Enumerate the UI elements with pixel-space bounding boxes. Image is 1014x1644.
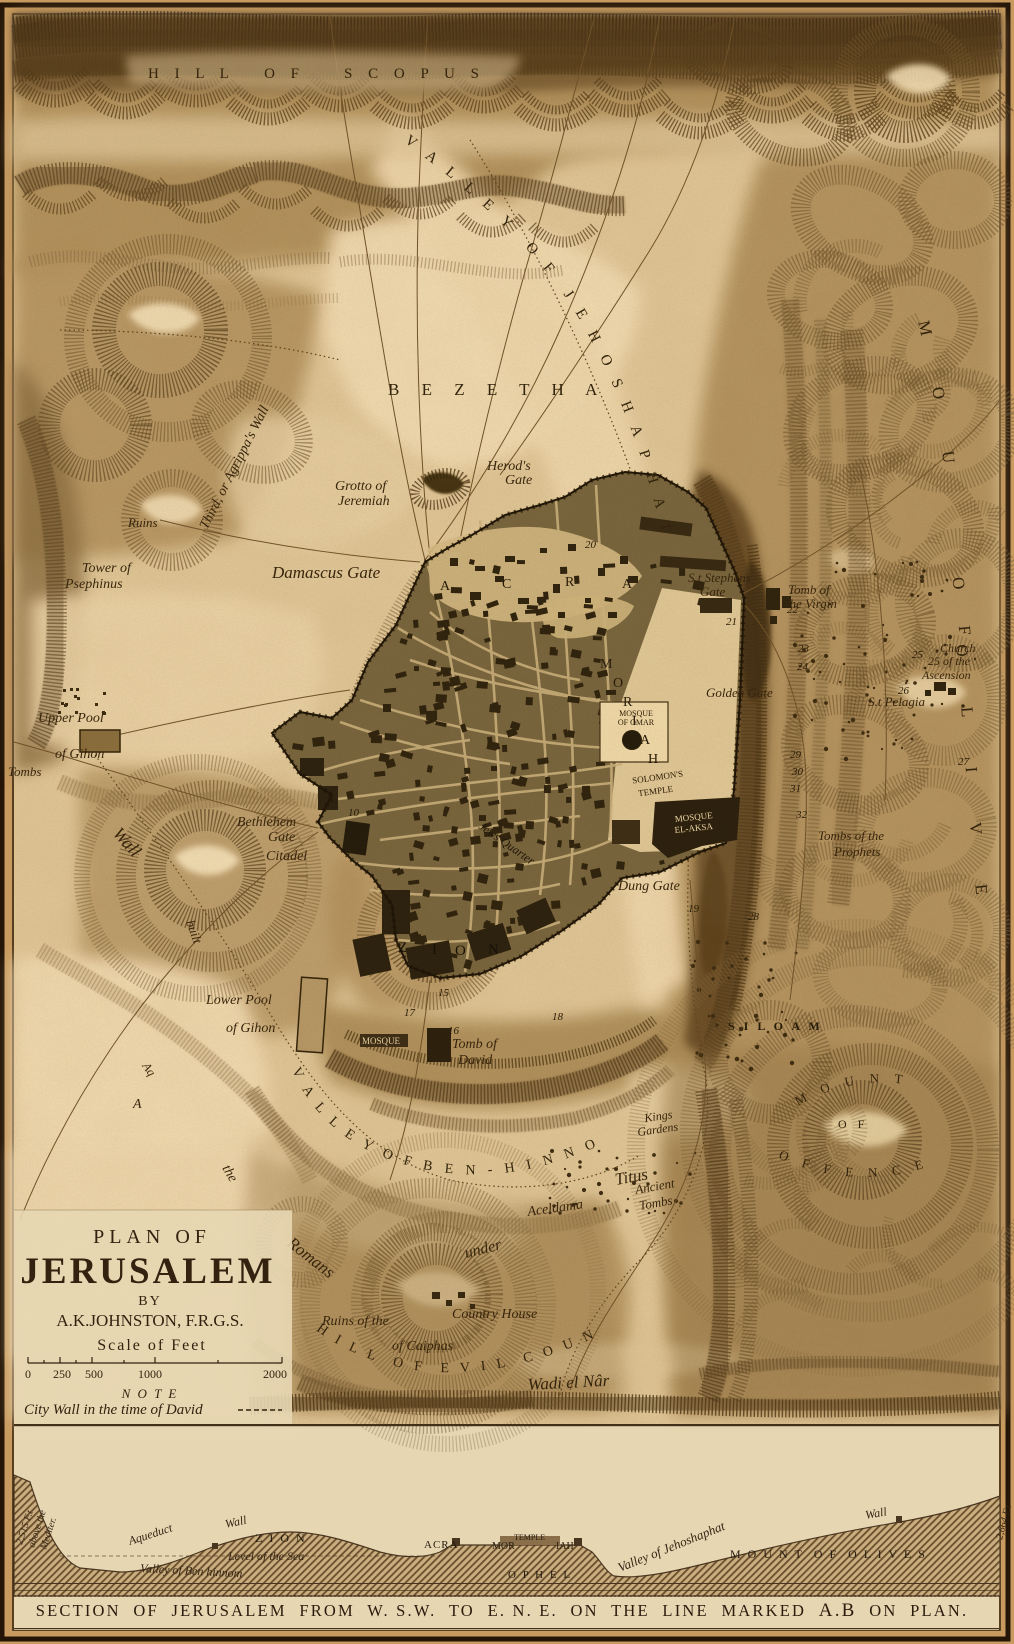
- svg-text:0: 0: [25, 1367, 31, 1381]
- svg-text:JERUSALEM: JERUSALEM: [20, 1251, 275, 1292]
- svg-text:2000: 2000: [263, 1367, 287, 1381]
- svg-text:Scale of Feet: Scale of Feet: [97, 1337, 207, 1354]
- svg-text:M O U N T O F O L I V E S: M O U N T O F O L I V E S: [730, 1547, 927, 1561]
- svg-text:N O T E: N O T E: [121, 1386, 179, 1401]
- svg-text:ACRA: ACRA: [424, 1539, 459, 1551]
- svg-text:A.K.JOHNSTON, F.R.G.S.: A.K.JOHNSTON, F.R.G.S.: [56, 1311, 243, 1330]
- svg-text:500: 500: [85, 1367, 103, 1381]
- svg-text:SECTION OF JERUSALEM FROM: SECTION OF JERUSALEM FROM W. S.W. TO E. …: [36, 1600, 969, 1621]
- svg-text:MOR: MOR: [492, 1541, 515, 1552]
- svg-text:Level of the Sea: Level of the Sea: [227, 1549, 304, 1563]
- svg-text:Z I O N: Z I O N: [255, 1531, 307, 1545]
- svg-text:TEMPLE: TEMPLE: [514, 1533, 545, 1542]
- svg-text:City Wall in the time of David: City Wall in the time of David: [24, 1402, 203, 1418]
- svg-text:PLAN OF: PLAN OF: [93, 1226, 211, 1248]
- svg-text:BY: BY: [138, 1294, 161, 1309]
- svg-text:O P H E L: O P H E L: [508, 1569, 572, 1581]
- svg-text:250: 250: [53, 1367, 71, 1381]
- svg-text:IAH: IAH: [556, 1541, 574, 1552]
- svg-text:1000: 1000: [138, 1367, 162, 1381]
